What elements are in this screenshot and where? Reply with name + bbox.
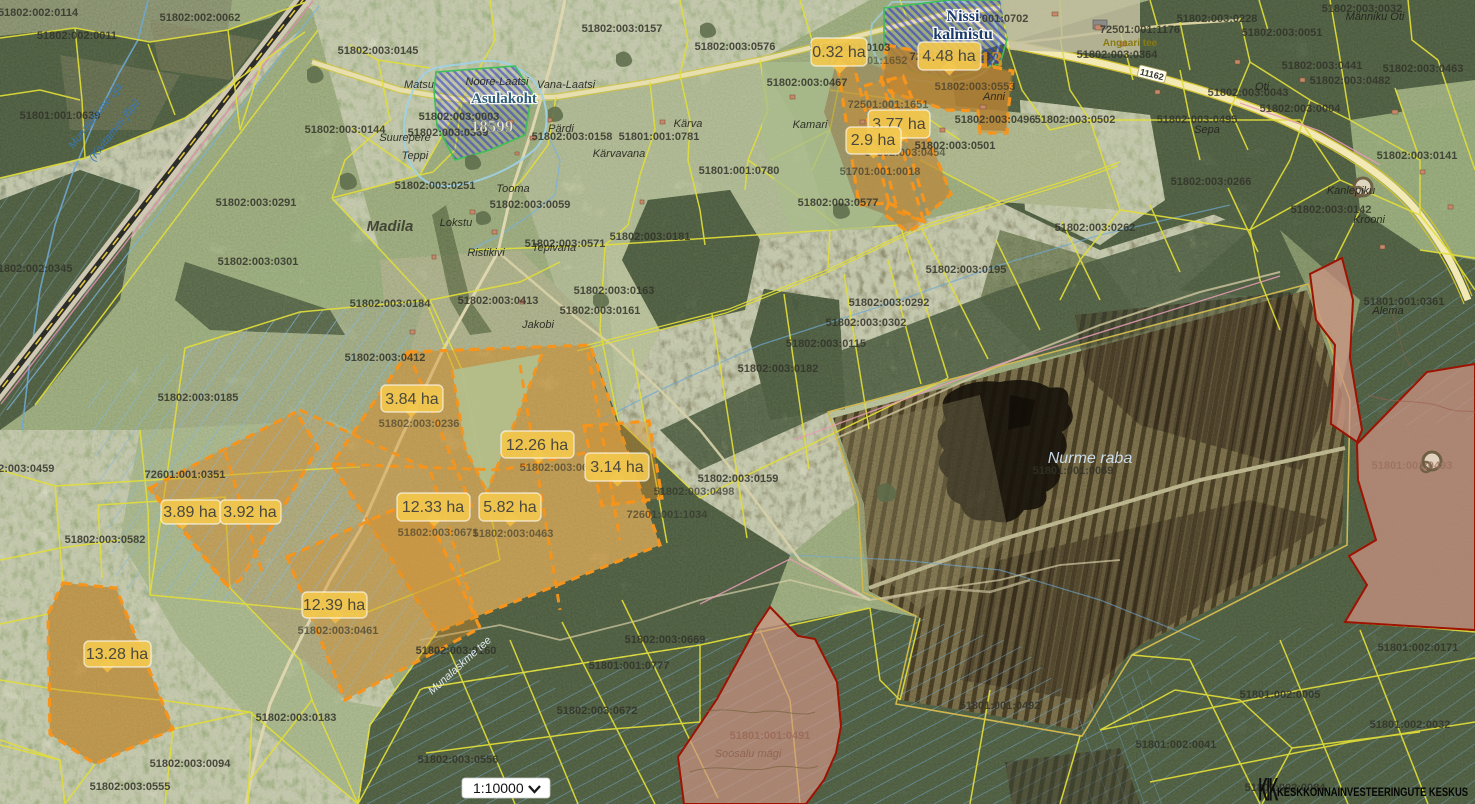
svg-text:12.26 ha: 12.26 ha <box>506 437 568 454</box>
svg-text:51802:003:0669: 51802:003:0669 <box>625 634 706 646</box>
svg-text:51802:003:0498: 51802:003:0498 <box>654 486 735 498</box>
svg-text:KESKKONNAINVESTEERINGUTE KESKU: KESKKONNAINVESTEERINGUTE KESKUS <box>1277 785 1468 799</box>
svg-text:Tooma: Tooma <box>496 183 529 195</box>
svg-text:Jakobi: Jakobi <box>521 319 554 331</box>
svg-text:51802:003:0441: 51802:003:0441 <box>1282 60 1363 72</box>
svg-text:72501:001:1651: 72501:001:1651 <box>848 99 929 111</box>
svg-text:Lokstu: Lokstu <box>440 217 472 229</box>
svg-text:3.89 ha: 3.89 ha <box>163 504 216 521</box>
svg-text:Tepivana: Tepivana <box>532 242 576 254</box>
svg-text:51802:003:0672: 51802:003:0672 <box>557 705 638 717</box>
svg-text:51802:003:0582: 51802:003:0582 <box>65 534 146 546</box>
svg-text:Sepa: Sepa <box>1194 124 1220 136</box>
svg-text:5.82 ha: 5.82 ha <box>483 499 536 516</box>
svg-text:51802:003:0181: 51802:003:0181 <box>610 231 691 243</box>
svg-text:51802:003:0051: 51802:003:0051 <box>1242 27 1323 39</box>
svg-text:Soosalu mägi: Soosalu mägi <box>715 748 782 760</box>
svg-text:Krooni: Krooni <box>1353 214 1385 226</box>
svg-text:51802:003:0556: 51802:003:0556 <box>418 754 499 766</box>
svg-text:51801:001:0777: 51801:001:0777 <box>589 660 670 672</box>
svg-text:51802:003:0364: 51802:003:0364 <box>1077 49 1159 61</box>
svg-text:18599: 18599 <box>471 117 514 136</box>
svg-text:4.48 ha: 4.48 ha <box>922 48 975 65</box>
svg-text:51802:003:0461: 51802:003:0461 <box>298 625 379 637</box>
svg-text:Suurepere: Suurepere <box>379 132 430 144</box>
svg-text:Männiku Oti: Männiku Oti <box>1346 11 1405 23</box>
svg-text:51802:003:0292: 51802:003:0292 <box>849 297 930 309</box>
svg-text:51802:003:0501: 51802:003:0501 <box>915 140 996 152</box>
svg-text:51802:003:0184: 51802:003:0184 <box>350 298 432 310</box>
svg-text:51802:003:0266: 51802:003:0266 <box>1171 176 1252 188</box>
svg-text:51802:003:0413: 51802:003:0413 <box>458 295 539 307</box>
svg-text:51802:003:0043: 51802:003:0043 <box>1208 87 1289 99</box>
svg-text:51802:003:0004: 51802:003:0004 <box>1260 103 1342 115</box>
svg-text:Pärdi: Pärdi <box>548 123 574 135</box>
svg-text:Ristikivi: Ristikivi <box>467 247 505 259</box>
svg-text:51802:002:0011: 51802:002:0011 <box>37 30 117 42</box>
svg-text:51801:002:0032: 51801:002:0032 <box>1370 719 1451 731</box>
svg-text:51802:002:0345: 51802:002:0345 <box>0 263 72 275</box>
svg-text:51802:003:0059: 51802:003:0059 <box>490 199 571 211</box>
svg-text:51701:001:0018: 51701:001:0018 <box>840 166 921 178</box>
svg-text:72501:001:1176: 72501:001:1176 <box>1100 24 1180 36</box>
svg-text:72601:001:1034: 72601:001:1034 <box>627 509 709 521</box>
svg-text:51802:003:0157: 51802:003:0157 <box>582 23 663 35</box>
svg-text:12.33 ha: 12.33 ha <box>402 499 464 516</box>
svg-text:51802:003:0182: 51802:003:0182 <box>738 363 819 375</box>
svg-text:51802:003:0141: 51802:003:0141 <box>1377 150 1458 162</box>
svg-text:51802:003:0459: 51802:003:0459 <box>0 463 54 475</box>
svg-text:51802:003:0094: 51802:003:0094 <box>150 758 232 770</box>
svg-text:Matsu: Matsu <box>404 79 434 91</box>
svg-text:51801:001:0780: 51801:001:0780 <box>699 165 780 177</box>
svg-text:2.9 ha: 2.9 ha <box>851 132 896 149</box>
svg-text:51802:003:0467: 51802:003:0467 <box>767 77 848 89</box>
svg-text:51802:003:0251: 51802:003:0251 <box>395 180 476 192</box>
svg-text:12.39 ha: 12.39 ha <box>303 597 365 614</box>
svg-text:51802:003:0302: 51802:003:0302 <box>826 317 907 329</box>
svg-text:51802:003:0577: 51802:003:0577 <box>798 197 879 209</box>
svg-text:51802:003:0161: 51802:003:0161 <box>560 305 641 317</box>
svg-text:3.84 ha: 3.84 ha <box>385 391 438 408</box>
svg-text:51802:003:0145: 51802:003:0145 <box>338 45 419 57</box>
svg-text:51802:003:0291: 51802:003:0291 <box>216 197 297 209</box>
svg-text:13: 13 <box>979 48 1003 74</box>
svg-text:51802:003:0671: 51802:003:0671 <box>398 527 479 539</box>
svg-text:51801:001:0491: 51801:001:0491 <box>730 730 811 742</box>
svg-text:Kamari: Kamari <box>793 119 828 131</box>
svg-text:51802:003:0115: 51802:003:0115 <box>786 338 866 350</box>
svg-text:51802:003:0236: 51802:003:0236 <box>379 418 460 430</box>
svg-text:Madila: Madila <box>367 218 414 235</box>
svg-text:51801:001:0493: 51801:001:0493 <box>1372 460 1453 472</box>
svg-text:51801:002:0041: 51801:002:0041 <box>1136 739 1217 751</box>
svg-text:Oti: Oti <box>1255 81 1270 93</box>
svg-text:51802:003:0463: 51802:003:0463 <box>473 528 554 540</box>
svg-text:51802:003:0159: 51802:003:0159 <box>698 473 779 485</box>
svg-text:kalmistu: kalmistu <box>933 26 993 43</box>
svg-text:51802:003:0195: 51802:003:0195 <box>926 264 1007 276</box>
svg-text:51802:003:0412: 51802:003:0412 <box>345 352 426 364</box>
svg-text:51801:001:0492: 51801:001:0492 <box>960 700 1041 712</box>
svg-text:Angaari tee: Angaari tee <box>1103 38 1158 49</box>
svg-text:0.32 ha: 0.32 ha <box>812 44 865 61</box>
svg-text:51802:003:0185: 51802:003:0185 <box>158 392 239 404</box>
svg-text:51802:003:0163: 51802:003:0163 <box>574 285 655 297</box>
svg-text:Anni: Anni <box>982 91 1006 103</box>
svg-text:51802:003:0183: 51802:003:0183 <box>256 712 337 724</box>
svg-text:51801:001:0781: 51801:001:0781 <box>619 131 700 143</box>
svg-text:51802:003:0301: 51802:003:0301 <box>218 256 299 268</box>
svg-text:Teppi: Teppi <box>402 150 429 162</box>
svg-text:Asulakoht: Asulakoht <box>471 91 537 107</box>
svg-text:Kärva: Kärva <box>674 118 703 130</box>
svg-text:Kanlepiku: Kanlepiku <box>1327 185 1375 197</box>
svg-text:Nurme raba: Nurme raba <box>1048 450 1133 467</box>
svg-text:Alema: Alema <box>1371 305 1403 317</box>
svg-text:1:10000: 1:10000 <box>473 780 524 796</box>
svg-text:51802:002:0062: 51802:002:0062 <box>160 12 241 24</box>
svg-text:51802:003:0482: 51802:003:0482 <box>1310 75 1391 87</box>
svg-text:51802:003:0262: 51802:003:0262 <box>1055 222 1136 234</box>
svg-text:72601:001:0351: 72601:001:0351 <box>145 469 226 481</box>
svg-text:3.14 ha: 3.14 ha <box>590 459 643 476</box>
svg-text:51802:003:0144: 51802:003:0144 <box>305 124 387 136</box>
svg-text:51801:002:0005: 51801:002:0005 <box>1240 689 1321 701</box>
svg-text:51802:003:0502: 51802:003:0502 <box>1035 114 1116 126</box>
svg-text:Noore-Laatsi: Noore-Laatsi <box>466 76 530 88</box>
svg-text:13.28 ha: 13.28 ha <box>86 646 148 663</box>
svg-text:51802:003:0228: 51802:003:0228 <box>1177 13 1258 25</box>
svg-text:51802:003:0463: 51802:003:0463 <box>1383 63 1464 75</box>
svg-text:51802:003:0555: 51802:003:0555 <box>90 781 171 793</box>
svg-text:3.92 ha: 3.92 ha <box>223 504 276 521</box>
svg-text:51802:002:0114: 51802:002:0114 <box>0 7 79 19</box>
svg-text:51802:003:0576: 51802:003:0576 <box>695 41 776 53</box>
svg-text:Vana-Laatsi: Vana-Laatsi <box>537 79 596 91</box>
svg-text:Nissi: Nissi <box>947 8 980 25</box>
svg-text:Kärvavana: Kärvavana <box>593 148 646 160</box>
svg-text:51802:003:0496: 51802:003:0496 <box>955 114 1036 126</box>
svg-text:51801:002:0171: 51801:002:0171 <box>1378 642 1459 654</box>
svg-text:KIK: KIK <box>1258 773 1278 804</box>
